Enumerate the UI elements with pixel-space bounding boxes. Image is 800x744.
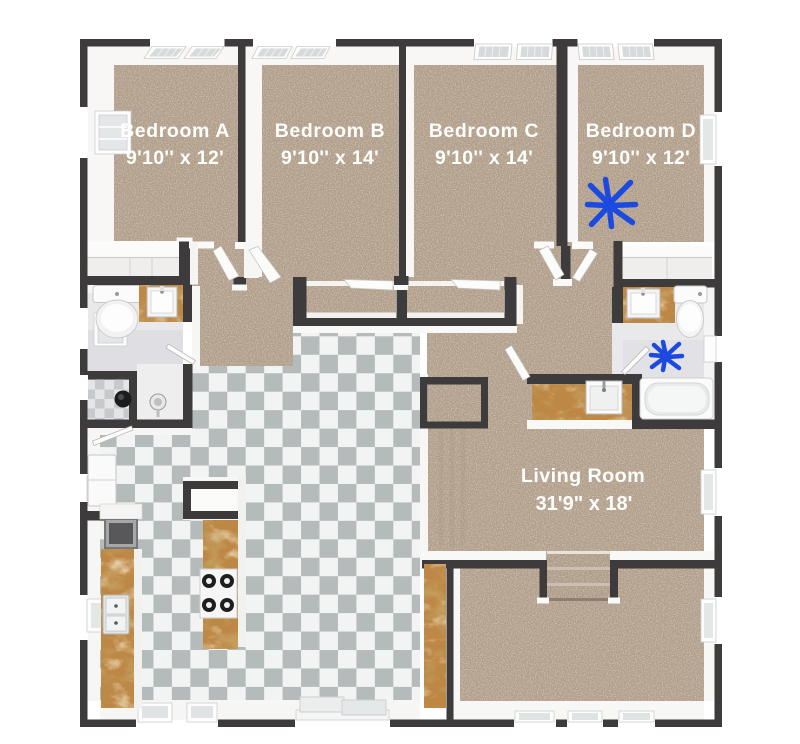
svg-text:Bedroom A: Bedroom A	[120, 120, 230, 142]
svg-text:9'10'' x 12': 9'10'' x 12'	[592, 147, 690, 169]
svg-text:Living Room: Living Room	[521, 465, 645, 487]
svg-text:9'10'' x 12': 9'10'' x 12'	[126, 147, 224, 169]
svg-text:Bedroom D: Bedroom D	[586, 120, 697, 142]
svg-text:9'10'' x 14': 9'10'' x 14'	[435, 147, 533, 169]
svg-text:Bedroom B: Bedroom B	[275, 120, 386, 142]
svg-text:9'10'' x 14': 9'10'' x 14'	[281, 147, 379, 169]
svg-text:Bedroom C: Bedroom C	[429, 120, 540, 142]
svg-text:31'9" x 18': 31'9" x 18'	[536, 493, 633, 515]
